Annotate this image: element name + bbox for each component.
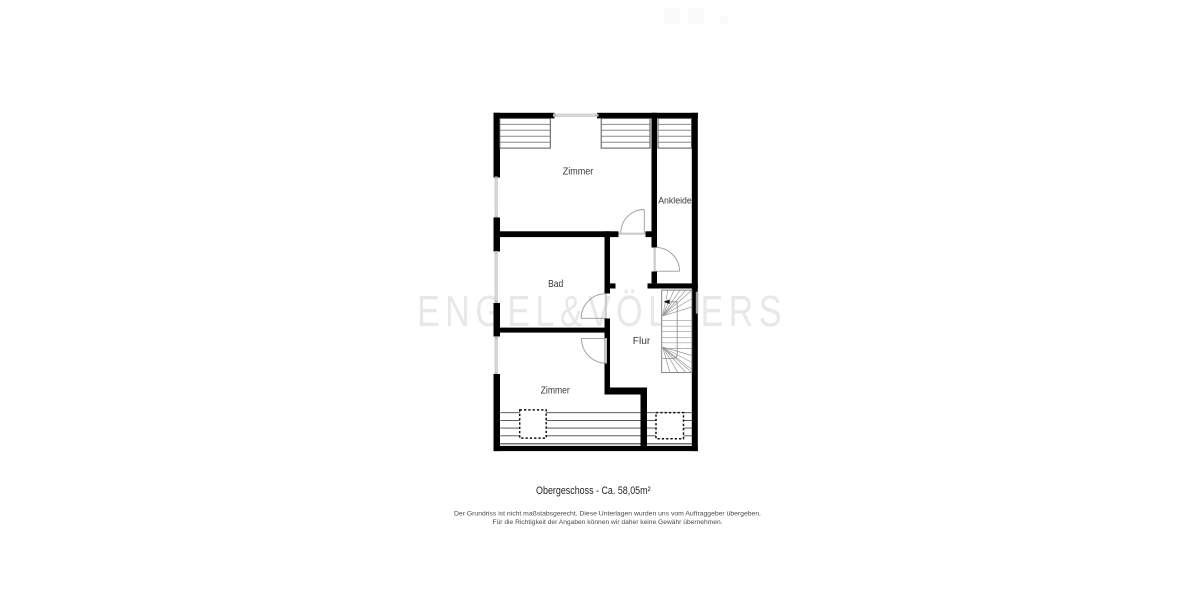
- svg-text:Zimmer: Zimmer: [541, 385, 570, 397]
- svg-text:Der Grundriss ist nicht maßsta: Der Grundriss ist nicht maßstabsgerecht.…: [454, 510, 761, 517]
- svg-text:Obergeschoss - Ca. 58,05m²: Obergeschoss - Ca. 58,05m²: [536, 485, 651, 497]
- svg-text:Ankleide: Ankleide: [658, 195, 692, 206]
- svg-text:Flur: Flur: [633, 335, 651, 347]
- svg-text:Für die Richtigkeit der Angabe: Für die Richtigkeit der Angaben können w…: [493, 519, 723, 526]
- svg-text:Bad: Bad: [548, 279, 563, 290]
- svg-text:Zimmer: Zimmer: [563, 166, 594, 178]
